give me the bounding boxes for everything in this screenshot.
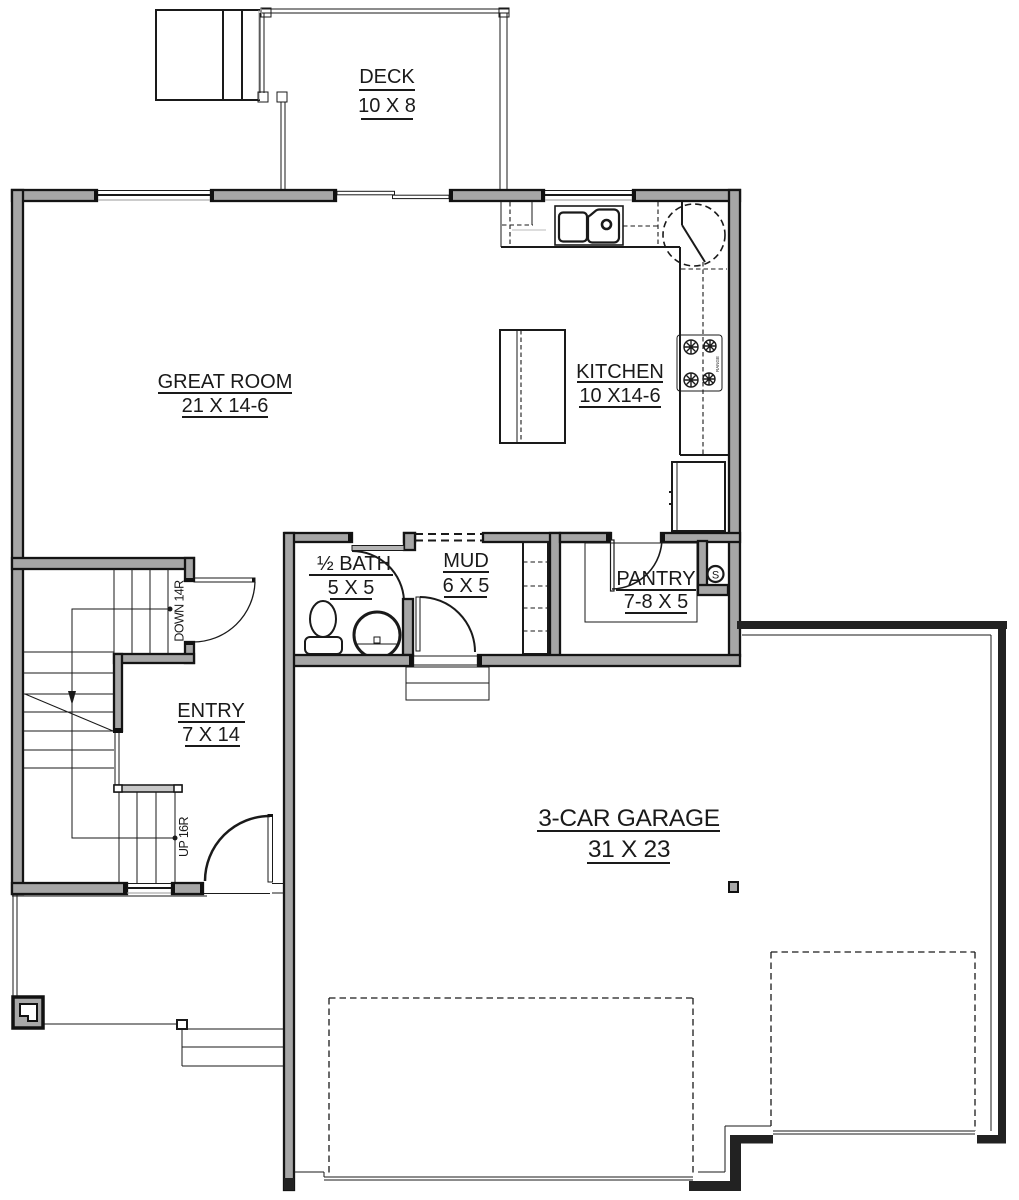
svg-text:7 X 14: 7 X 14	[182, 724, 240, 746]
svg-text:KITCHEN: KITCHEN	[576, 361, 664, 383]
svg-text:31 X 23: 31 X 23	[588, 836, 670, 863]
svg-text:ENTRY: ENTRY	[177, 700, 244, 722]
svg-text:DECK: DECK	[359, 66, 415, 88]
svg-text:S: S	[712, 570, 719, 582]
svg-text:½ BATH: ½ BATH	[317, 553, 391, 575]
svg-text:3-CAR GARAGE: 3-CAR GARAGE	[538, 805, 720, 832]
svg-text:PANTRY: PANTRY	[616, 568, 695, 590]
svg-text:10 X14-6: 10 X14-6	[579, 385, 660, 407]
svg-text:6 X 5: 6 X 5	[443, 575, 490, 597]
svg-text:10 X 8: 10 X 8	[358, 95, 416, 117]
svg-text:MUD: MUD	[443, 550, 489, 572]
svg-text:DOWN 14R: DOWN 14R	[173, 580, 187, 642]
svg-text:GREAT ROOM: GREAT ROOM	[158, 371, 293, 393]
svg-text:7-8 X 5: 7-8 X 5	[624, 591, 688, 613]
svg-text:5 X 5: 5 X 5	[328, 577, 375, 599]
svg-text:UP 16R: UP 16R	[177, 816, 191, 857]
svg-text:21 X 14-6: 21 X 14-6	[182, 395, 269, 417]
svg-text:RANGE: RANGE	[715, 356, 720, 372]
